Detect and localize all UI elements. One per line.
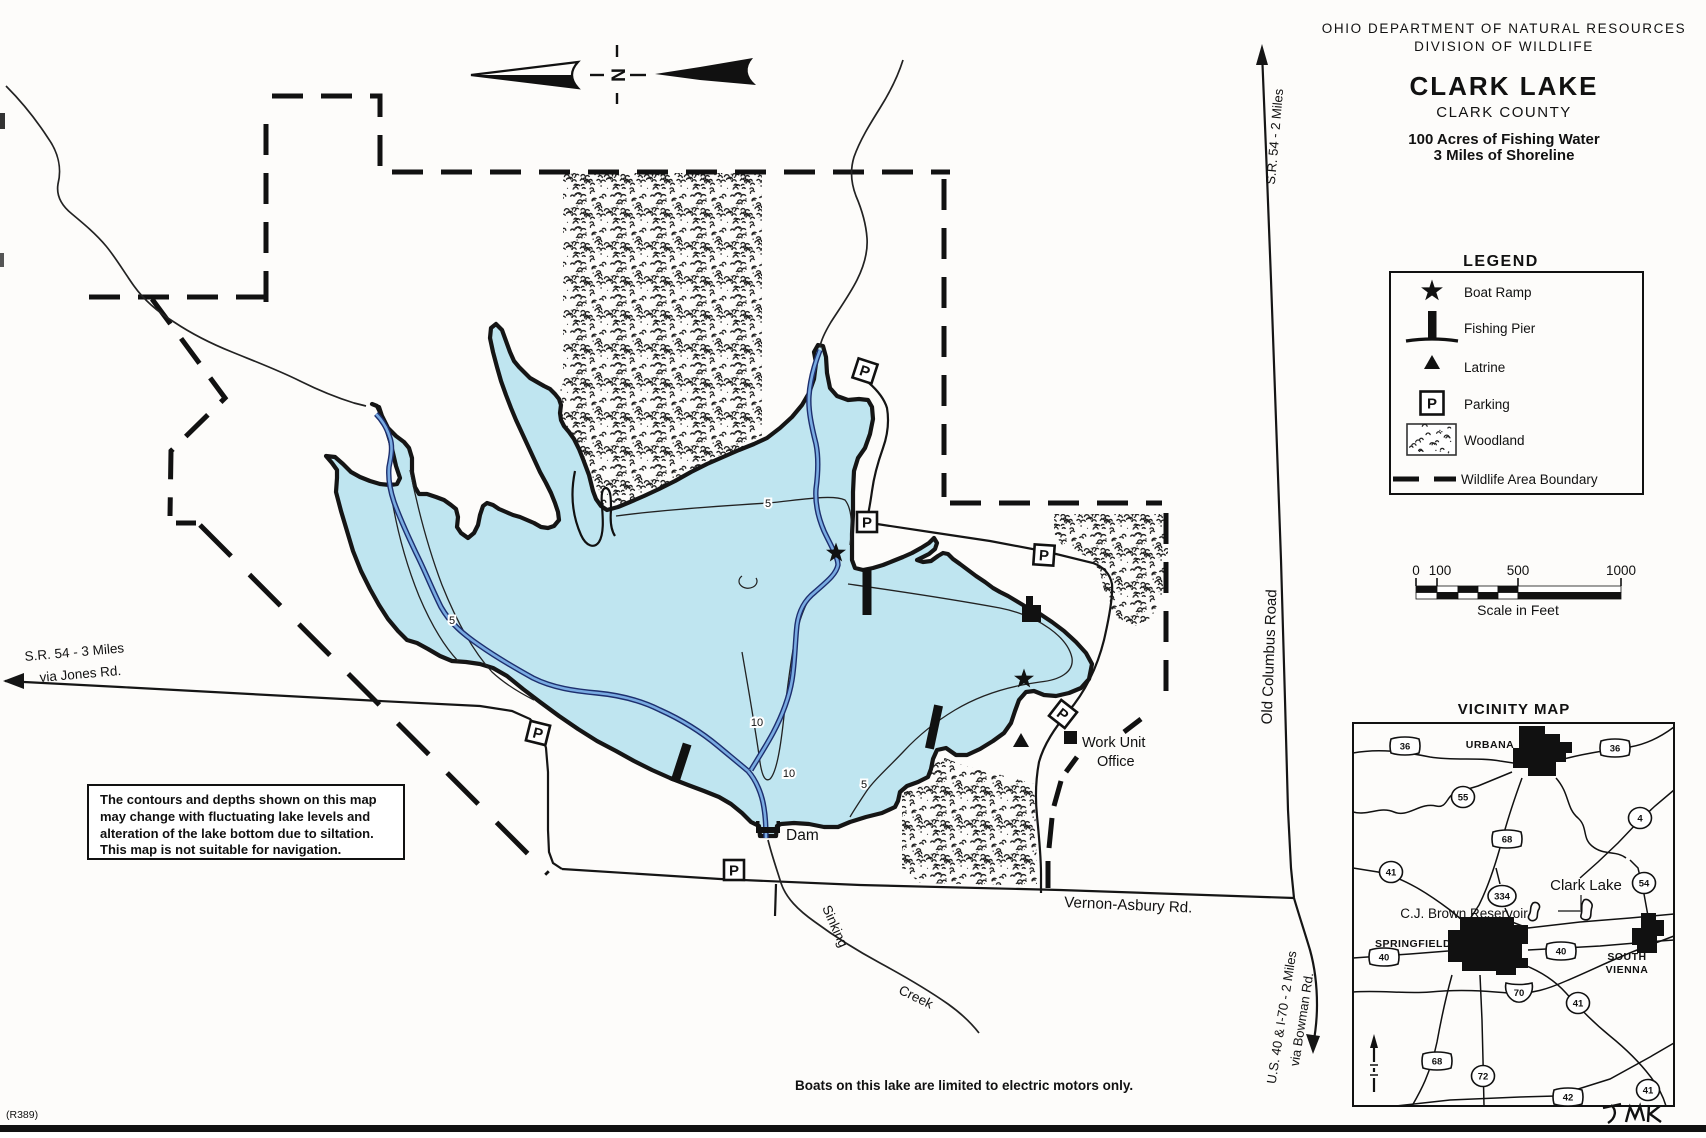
svg-text:(R389): (R389) (6, 1109, 38, 1121)
svg-text:0: 0 (1412, 563, 1420, 578)
svg-text:CLARK LAKE: CLARK LAKE (1410, 71, 1599, 101)
svg-text:5: 5 (765, 498, 771, 510)
svg-text:70: 70 (1514, 988, 1525, 999)
svg-text:55: 55 (1458, 792, 1469, 803)
svg-text:SPRINGFIELD: SPRINGFIELD (1375, 938, 1451, 950)
svg-text:VIENNA: VIENNA (1606, 964, 1649, 976)
svg-text:41: 41 (1386, 867, 1397, 878)
svg-text:41: 41 (1573, 998, 1584, 1009)
svg-text:Clark Lake: Clark Lake (1550, 877, 1622, 894)
svg-text:41: 41 (1643, 1085, 1654, 1096)
svg-text:P: P (1038, 547, 1049, 565)
svg-text:may change with fluctuating la: may change with fluctuating lake levels … (100, 809, 370, 824)
svg-text:36: 36 (1610, 743, 1621, 754)
svg-text:Fishing Pier: Fishing Pier (1464, 321, 1536, 336)
svg-text:42: 42 (1563, 1092, 1574, 1103)
svg-text:54: 54 (1639, 878, 1650, 889)
svg-text:OHIO DEPARTMENT OF NATURAL RES: OHIO DEPARTMENT OF NATURAL RESOURCES (1322, 21, 1686, 36)
svg-text:10: 10 (751, 717, 763, 729)
svg-text:C.J. Brown Reservoir: C.J. Brown Reservoir (1400, 906, 1528, 921)
svg-text:P: P (862, 515, 872, 532)
svg-text:alteration of the lake bottom: alteration of the lake bottom due to sil… (100, 826, 374, 841)
svg-text:36: 36 (1400, 741, 1411, 752)
svg-text:DIVISION OF WILDLIFE: DIVISION OF WILDLIFE (1414, 39, 1594, 54)
svg-text:URBANA: URBANA (1466, 739, 1515, 751)
svg-text:This map is not suitable for n: This map is not suitable for navigation. (100, 842, 341, 857)
svg-text:68: 68 (1502, 834, 1513, 845)
svg-text:Woodland: Woodland (1464, 433, 1525, 448)
svg-text:100 Acres of Fishing Water: 100 Acres of Fishing Water (1408, 131, 1600, 148)
svg-text:Wildlife Area Boundary: Wildlife Area Boundary (1461, 472, 1598, 487)
svg-text:10: 10 (783, 768, 795, 780)
svg-text:CLARK COUNTY: CLARK COUNTY (1436, 104, 1572, 121)
svg-text:VICINITY MAP: VICINITY MAP (1458, 701, 1571, 718)
svg-text:3 Miles of Shoreline: 3 Miles of Shoreline (1434, 147, 1575, 164)
svg-text:72: 72 (1478, 1071, 1489, 1082)
svg-text:Boats on this lake are limited: Boats on this lake are limited to electr… (795, 1078, 1133, 1093)
svg-text:Dam: Dam (786, 827, 819, 844)
svg-text:40: 40 (1379, 952, 1390, 963)
svg-text:SOUTH: SOUTH (1607, 951, 1646, 963)
svg-text:Work Unit: Work Unit (1082, 735, 1145, 751)
svg-text:1000: 1000 (1606, 563, 1636, 578)
svg-text:100: 100 (1429, 563, 1452, 578)
svg-text:Parking: Parking (1464, 397, 1510, 412)
svg-text:P: P (1427, 396, 1437, 413)
svg-text:Latrine: Latrine (1464, 360, 1505, 375)
svg-text:Boat Ramp: Boat Ramp (1464, 285, 1532, 300)
svg-text:P: P (729, 863, 739, 880)
svg-text:5: 5 (449, 615, 455, 627)
svg-text:N: N (607, 68, 628, 82)
svg-text:68: 68 (1432, 1056, 1443, 1067)
svg-text:334: 334 (1494, 891, 1511, 902)
svg-text:Scale in Feet: Scale in Feet (1477, 602, 1559, 618)
svg-text:4: 4 (1637, 813, 1643, 824)
svg-text:Office: Office (1097, 754, 1135, 770)
svg-text:The contours and depths shown: The contours and depths shown on this ma… (100, 792, 377, 807)
svg-text:LEGEND: LEGEND (1463, 253, 1539, 270)
svg-text:500: 500 (1507, 563, 1530, 578)
svg-text:40: 40 (1556, 946, 1567, 957)
svg-text:5: 5 (861, 779, 867, 791)
